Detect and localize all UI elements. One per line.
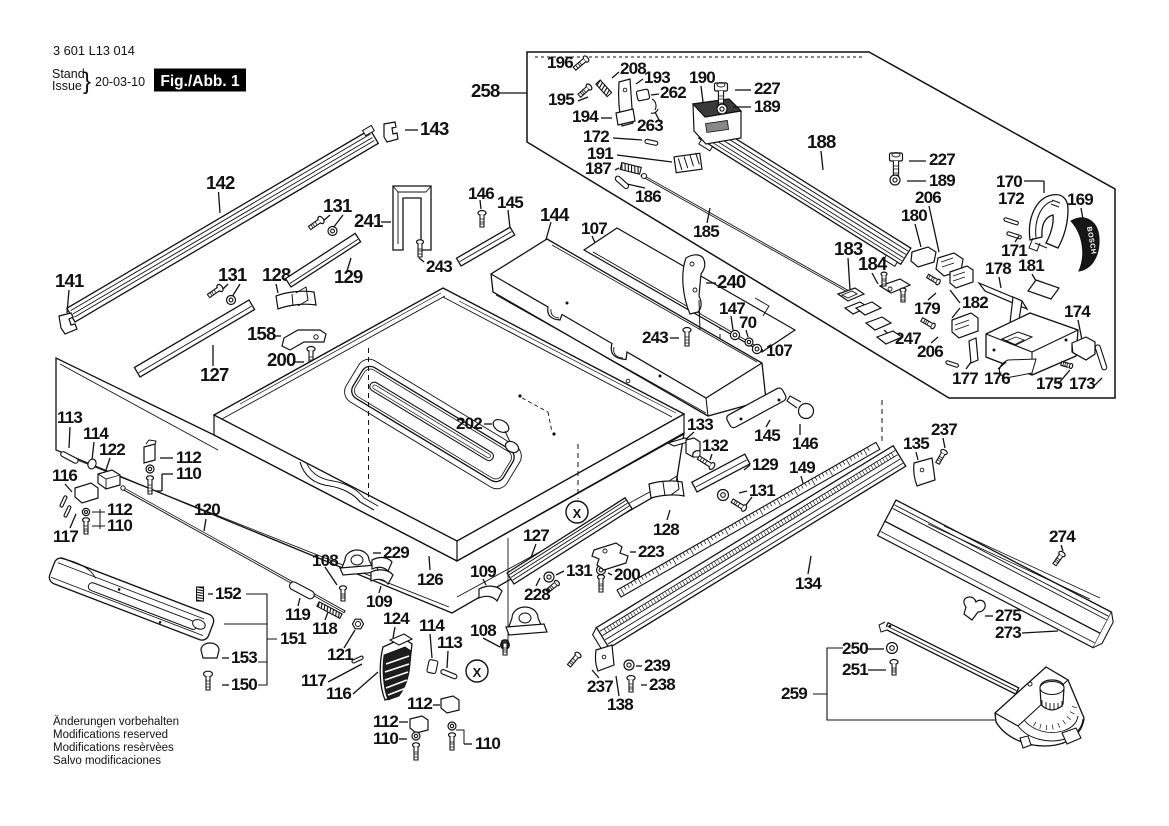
svg-text:251: 251 [842, 660, 868, 679]
svg-text:131: 131 [566, 561, 592, 580]
svg-text:143: 143 [420, 118, 449, 139]
svg-text:113: 113 [437, 633, 462, 652]
svg-text:273: 273 [995, 623, 1021, 642]
svg-text:227: 227 [929, 150, 955, 169]
svg-text:107: 107 [581, 219, 607, 238]
svg-text:117: 117 [53, 527, 78, 546]
svg-text:206: 206 [917, 342, 943, 361]
svg-text:185: 185 [693, 222, 719, 241]
svg-text:173: 173 [1069, 374, 1095, 393]
svg-text:178: 178 [985, 259, 1011, 278]
svg-text:135: 135 [903, 434, 929, 453]
svg-text:20-03-10: 20-03-10 [95, 75, 145, 89]
svg-text:174: 174 [1064, 302, 1091, 321]
svg-text:126: 126 [417, 570, 443, 589]
svg-text:109: 109 [470, 562, 496, 581]
svg-text:146: 146 [792, 434, 818, 453]
svg-text:113: 113 [57, 408, 82, 427]
svg-text:119: 119 [285, 605, 310, 624]
svg-text:200: 200 [267, 349, 296, 370]
svg-text:223: 223 [638, 542, 664, 561]
svg-text:250: 250 [842, 639, 868, 658]
svg-text:237: 237 [931, 420, 957, 439]
svg-text:Fig./Abb. 1: Fig./Abb. 1 [160, 73, 240, 90]
svg-text:117: 117 [301, 671, 326, 690]
svg-text:243: 243 [426, 257, 452, 276]
svg-text:131: 131 [323, 195, 352, 216]
svg-text:190: 190 [689, 68, 715, 87]
svg-text:206: 206 [915, 188, 941, 207]
svg-text:239: 239 [644, 656, 670, 675]
svg-text:134: 134 [795, 574, 822, 593]
svg-text:259: 259 [781, 684, 807, 703]
svg-text:179: 179 [914, 299, 940, 318]
svg-text:196: 196 [547, 53, 573, 72]
svg-text:129: 129 [752, 455, 778, 474]
svg-text:202: 202 [456, 414, 482, 433]
svg-text:Issue: Issue [52, 79, 82, 93]
svg-text:182: 182 [962, 293, 988, 312]
svg-text:116: 116 [326, 684, 351, 703]
svg-text:3 601 L13 014: 3 601 L13 014 [53, 43, 135, 58]
svg-text:151: 151 [280, 629, 306, 648]
svg-text:129: 129 [334, 266, 363, 287]
svg-text:70: 70 [739, 313, 757, 332]
svg-text:110: 110 [176, 464, 201, 483]
svg-text:263: 263 [637, 116, 663, 135]
svg-text:176: 176 [984, 369, 1010, 388]
svg-text:107: 107 [766, 341, 792, 360]
svg-text:121: 121 [327, 645, 353, 664]
svg-text:152: 152 [215, 584, 241, 603]
svg-text:258: 258 [471, 80, 500, 101]
svg-text:149: 149 [789, 458, 815, 477]
svg-text:153: 153 [231, 648, 257, 667]
svg-text:131: 131 [218, 264, 247, 285]
svg-text:127: 127 [523, 526, 549, 545]
svg-text:Modifications resèrvèes: Modifications resèrvèes [53, 742, 174, 754]
svg-text:141: 141 [55, 270, 84, 291]
svg-text:112: 112 [407, 694, 432, 713]
svg-text:124: 124 [383, 609, 410, 628]
svg-text:108: 108 [470, 621, 496, 640]
svg-text:120: 120 [194, 500, 220, 519]
svg-text:138: 138 [607, 695, 633, 714]
svg-text:116: 116 [52, 466, 77, 485]
svg-text:177: 177 [952, 369, 978, 388]
svg-text:122: 122 [99, 440, 125, 459]
svg-text:208: 208 [620, 59, 646, 78]
svg-text:240: 240 [717, 271, 746, 292]
svg-text:158: 158 [247, 323, 276, 344]
svg-text:}: } [83, 68, 91, 95]
svg-text:241: 241 [354, 210, 383, 231]
svg-text:237: 237 [587, 677, 613, 696]
svg-text:184: 184 [858, 253, 888, 274]
svg-text:110: 110 [373, 729, 398, 748]
svg-text:128: 128 [262, 264, 291, 285]
svg-text:145: 145 [497, 193, 523, 212]
svg-text:110: 110 [475, 734, 500, 753]
svg-text:142: 142 [206, 172, 235, 193]
svg-text:189: 189 [754, 97, 780, 116]
svg-text:144: 144 [540, 204, 570, 225]
svg-text:187: 187 [585, 159, 611, 178]
svg-text:274: 274 [1049, 527, 1076, 546]
svg-text:238: 238 [649, 675, 675, 694]
svg-text:172: 172 [998, 189, 1024, 208]
svg-text:227: 227 [754, 79, 780, 98]
svg-text:262: 262 [660, 83, 686, 102]
svg-text:110: 110 [107, 516, 132, 535]
svg-text:195: 195 [548, 90, 574, 109]
svg-text:181: 181 [1018, 256, 1044, 275]
svg-text:X: X [473, 665, 482, 680]
svg-text:128: 128 [653, 520, 679, 539]
svg-text:194: 194 [572, 107, 599, 126]
svg-text:243: 243 [642, 328, 668, 347]
svg-text:X: X [573, 506, 582, 521]
svg-text:150: 150 [231, 675, 257, 694]
svg-text:131: 131 [749, 481, 775, 500]
svg-text:132: 132 [702, 436, 728, 455]
svg-text:146: 146 [468, 184, 494, 203]
svg-text:188: 188 [807, 131, 836, 152]
svg-text:228: 228 [524, 585, 550, 604]
svg-text:118: 118 [312, 619, 337, 638]
svg-text:186: 186 [635, 187, 661, 206]
svg-text:Salvo modificaciones: Salvo modificaciones [53, 755, 161, 767]
svg-text:Änderungen vorbehalten: Änderungen vorbehalten [53, 716, 179, 728]
svg-text:133: 133 [687, 415, 713, 434]
svg-text:145: 145 [754, 426, 780, 445]
svg-text:127: 127 [200, 364, 229, 385]
svg-text:169: 169 [1067, 190, 1093, 209]
svg-text:180: 180 [901, 206, 927, 225]
svg-text:Modifications reserved: Modifications reserved [53, 729, 168, 741]
